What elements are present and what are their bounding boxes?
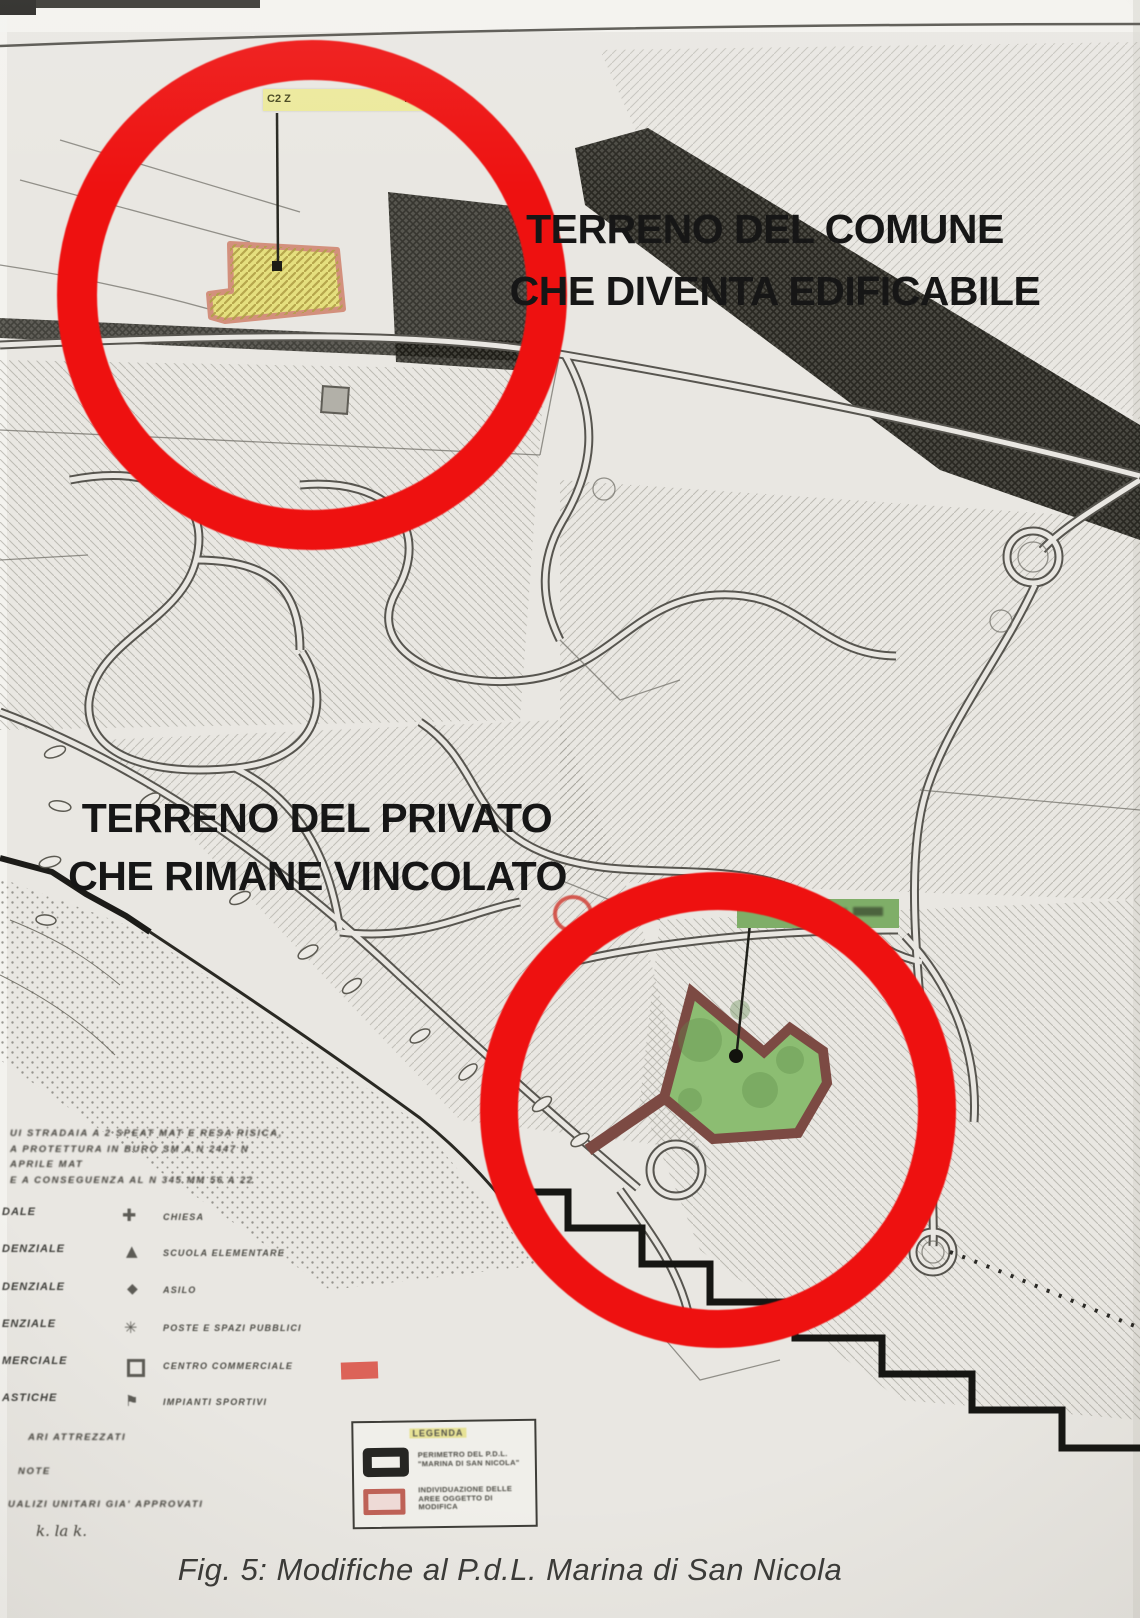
modified-area-symbol	[363, 1489, 405, 1516]
red-stamp-mark	[341, 1361, 379, 1379]
legend-left-fragment: ASTICHE	[2, 1392, 57, 1404]
commercial-square-icon	[127, 1359, 145, 1377]
legend-panel-title: LEGENDA	[409, 1428, 466, 1439]
legend-item-1-label: PERIMETRO DEL P.D.L. "MARINA DI SAN NICO…	[418, 1450, 526, 1469]
kindergarten-diamond-icon: ◆	[127, 1282, 138, 1296]
annotation-comune-line1: TERRENO DEL COMUNE	[500, 206, 1030, 253]
pdl-perimeter-symbol	[363, 1447, 409, 1477]
legend-row-label: CENTRO COMMERCIALE	[163, 1361, 293, 1371]
legend-left-fragment: MERCIALE	[2, 1355, 67, 1367]
legend-row-label: ASILO	[163, 1285, 197, 1295]
note-line: ARI ATTREZZATI	[28, 1430, 126, 1446]
scanned-figure-page: C2 Z NZIALE TERRENO DEL COMUNE CHE DIVEN…	[0, 0, 1140, 1618]
legend-left-fragment: DALE	[2, 1206, 36, 1218]
church-cross-icon: ✚	[122, 1208, 136, 1225]
annotation-comune-line2: CHE DIVENTA EDIFICABILE	[495, 268, 1055, 315]
note-line: UI STRADAIA A 2 SPEAT MAT E RESA RISICA,	[10, 1126, 350, 1142]
scan-edge-smudge	[0, 0, 260, 8]
sports-flag-icon: ⚑	[125, 1394, 138, 1409]
figure-caption: Fig. 5: Modifiche al P.d.L. Marina di Sa…	[0, 1552, 1020, 1588]
legend-row-label: IMPIANTI SPORTIVI	[163, 1397, 267, 1407]
legend-left-fragment: DENZIALE	[2, 1281, 65, 1293]
note-line: NOTE	[18, 1464, 51, 1480]
map-notes-block: UI STRADAIA A 2 SPEAT MAT E RESA RISICA,…	[10, 1126, 350, 1188]
red-circle-annotation-bottom	[480, 872, 956, 1348]
legend-row-label: SCUOLA ELEMENTARE	[163, 1248, 285, 1258]
legend-left-fragment: DENZIALE	[2, 1243, 65, 1255]
handwritten-note: k. la k.	[36, 1522, 87, 1540]
services-starburst-icon: ✳	[124, 1320, 137, 1336]
note-line: A PROTETTURA IN BURO SM A N 2447 N	[10, 1142, 350, 1158]
note-line: E A CONSEGUENZA AL N 345 MM 56 A 22	[10, 1173, 350, 1189]
legend-row-label: POSTE E SPAZI PUBBLICI	[163, 1323, 302, 1333]
green-zone-label-smudge	[853, 907, 883, 916]
note-line: UALIZI UNITARI GIA' APPROVATI	[8, 1497, 204, 1513]
legend-row-label: CHIESA	[163, 1212, 204, 1222]
note-line: APRILE MAT	[10, 1157, 350, 1173]
annotation-privato-line2: CHE RIMANE VINCOLATO	[40, 853, 595, 900]
legend-left-fragment: ENZIALE	[2, 1318, 56, 1330]
legend-item-2-label: INDIVIDUAZIONE DELLE AREE OGGETTO DI MOD…	[418, 1485, 518, 1512]
legend-panel: LEGENDA PERIMETRO DEL P.D.L. "MARINA DI …	[351, 1419, 537, 1530]
school-triangle-icon: ▲	[126, 1244, 138, 1259]
annotation-privato-line1: TERRENO DEL PRIVATO	[62, 795, 572, 842]
red-circle-annotation-top	[57, 40, 567, 550]
